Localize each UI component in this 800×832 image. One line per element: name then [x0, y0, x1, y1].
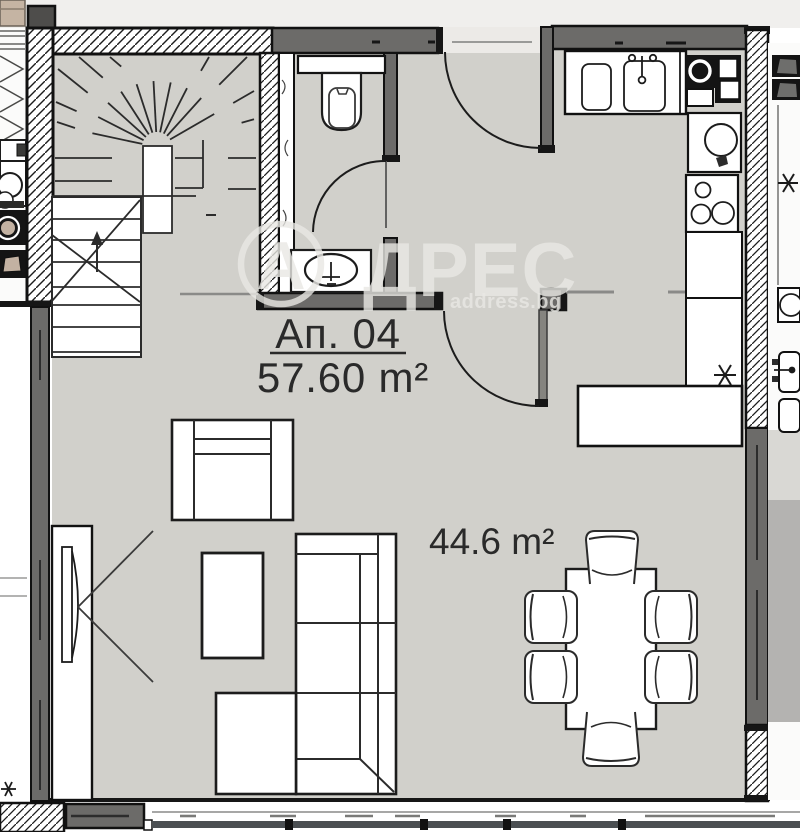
svg-text:44.6 m²: 44.6 m² — [429, 521, 554, 562]
svg-text:address.bg: address.bg — [450, 291, 562, 313]
svg-text:А: А — [256, 228, 305, 304]
svg-text:57.60 m²: 57.60 m² — [257, 354, 429, 401]
svg-text:Ап. 04: Ап. 04 — [275, 310, 401, 357]
